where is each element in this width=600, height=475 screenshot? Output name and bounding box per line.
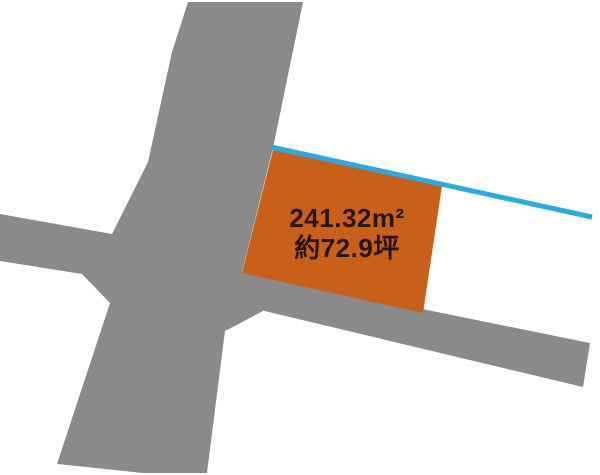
plot-area-sqm-label: 241.32m²: [289, 203, 404, 233]
plot-map: 241.32m² 約72.9坪: [0, 0, 600, 475]
plot-area-tsubo-label: 約72.9坪: [294, 233, 400, 263]
plot-map-canvas: 241.32m² 約72.9坪: [0, 0, 600, 475]
